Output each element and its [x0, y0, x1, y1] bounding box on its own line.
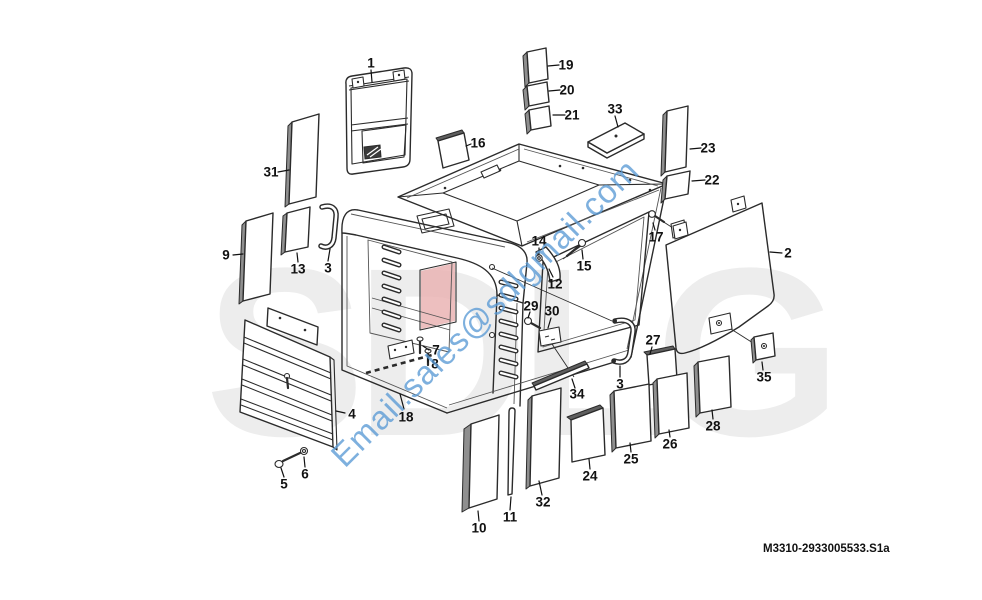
part-22-panel [661, 171, 690, 203]
part-20-panel [523, 82, 549, 110]
part-label-6: 6 [301, 467, 309, 482]
part-33-plate [588, 123, 644, 158]
exploded-view-drawing: 1319133456187810113234242526282735217222… [0, 0, 982, 600]
leader-line-10 [478, 511, 479, 521]
part-6-washer [301, 448, 308, 455]
part-label-18: 18 [398, 410, 414, 425]
leader-line-2 [770, 252, 782, 253]
part-label-3: 3 [324, 261, 332, 276]
part-label-21: 21 [564, 108, 580, 123]
leader-line-6 [304, 457, 305, 467]
part-35-plate [751, 333, 775, 363]
leader-line-19 [548, 65, 559, 66]
part-14-washer [536, 255, 542, 261]
leader-line-20 [549, 90, 560, 91]
part-label-26: 26 [662, 437, 678, 452]
part-label-15: 15 [576, 259, 592, 274]
part-25-panel [610, 384, 651, 452]
part-label-35: 35 [756, 370, 772, 385]
part-29-bolt [525, 318, 541, 329]
part-11-strip [508, 408, 515, 495]
part-label-22: 22 [704, 173, 719, 188]
part-16-panel [436, 130, 469, 168]
part-label-28: 28 [705, 419, 721, 434]
part-23-panel [661, 106, 688, 176]
part-label-30: 30 [544, 304, 559, 319]
part-label-2: 2 [784, 246, 792, 261]
part-label-23: 23 [700, 141, 716, 156]
part-label-33: 33 [607, 102, 623, 117]
part-1-door [346, 68, 412, 174]
part-21-panel [525, 106, 551, 134]
part-label-29: 29 [523, 299, 538, 314]
part-label-24: 24 [582, 469, 598, 484]
part-3-handle-left [321, 206, 336, 247]
part-19-panel [523, 48, 548, 87]
part-label-16: 16 [470, 136, 486, 151]
leader-line-24 [589, 459, 590, 469]
part-5-bolt [275, 453, 300, 468]
part-31-panel [285, 114, 319, 207]
leader-line-23 [690, 148, 701, 149]
part-label-13: 13 [290, 262, 306, 277]
diagram-page: SDLG [0, 0, 982, 600]
left-vent-slots [384, 247, 399, 330]
leader-line-30 [548, 318, 551, 328]
part-label-27: 27 [645, 333, 660, 348]
part-13-panel [281, 207, 310, 255]
leader-line-33 [615, 116, 618, 127]
leader-line-11 [510, 497, 511, 510]
part-9-panel [239, 213, 273, 304]
part-4-grille [240, 308, 337, 450]
part-label-8: 8 [431, 357, 439, 372]
part-label-12: 12 [547, 277, 562, 292]
part-26-panel [653, 373, 689, 438]
part-label-31: 31 [263, 165, 279, 180]
part-2-glass-door [666, 196, 774, 353]
part-label-9: 9 [222, 248, 230, 263]
door-latch-icon [364, 145, 381, 159]
part-label-20: 20 [559, 83, 574, 98]
leader-line-4 [336, 411, 345, 413]
part-label-7: 7 [432, 343, 440, 358]
leader-line-3 [328, 249, 330, 261]
part-24-panel [567, 405, 605, 462]
part-10-panel [462, 415, 499, 512]
figure-code: M3310-2933005533.S1a [763, 543, 890, 555]
part-label-5: 5 [280, 477, 288, 492]
part-label-14: 14 [531, 234, 547, 249]
part-label-11: 11 [503, 510, 518, 525]
right-vent-slots [501, 282, 516, 377]
part-28-panel [694, 356, 731, 417]
leader-line-22 [692, 180, 705, 181]
part-label-3: 3 [616, 377, 624, 392]
cab-frame [342, 144, 667, 413]
leader-line-18 [400, 394, 404, 409]
bolt-alignment-dashed-line [366, 355, 432, 373]
part-label-10: 10 [471, 521, 486, 536]
part-32-panel [526, 388, 561, 489]
part-label-1: 1 [367, 56, 375, 71]
part-label-19: 19 [558, 58, 573, 73]
part-label-34: 34 [569, 387, 585, 402]
part-label-32: 32 [535, 495, 550, 510]
part-30-plate [539, 327, 561, 346]
part-label-25: 25 [623, 452, 639, 467]
part-label-17: 17 [648, 230, 663, 245]
part-label-4: 4 [348, 407, 356, 422]
